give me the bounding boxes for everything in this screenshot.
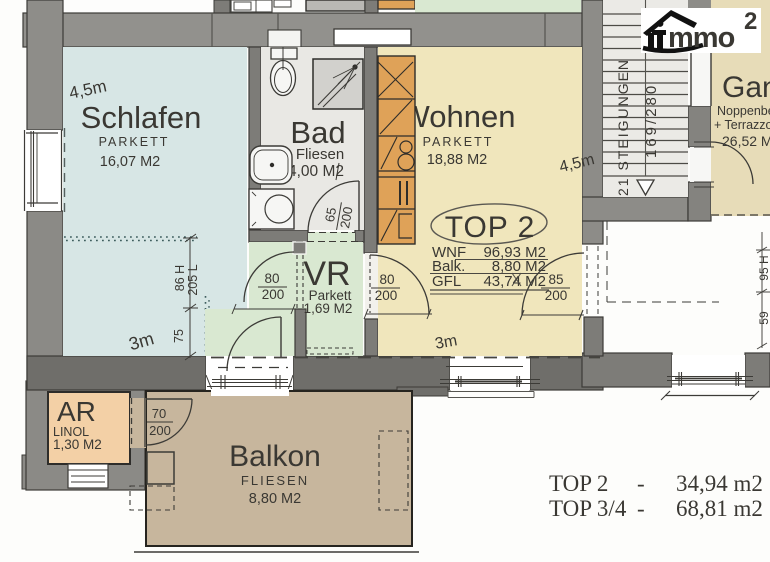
svg-text:1,69 M2: 1,69 M2 [304, 301, 353, 316]
svg-text:80: 80 [264, 271, 279, 286]
svg-text:TOP 2: TOP 2 [445, 211, 536, 244]
svg-text:59: 59 [757, 311, 770, 325]
svg-text:200: 200 [545, 288, 568, 303]
svg-text:200: 200 [262, 287, 285, 302]
svg-text:PARKETT: PARKETT [423, 135, 494, 149]
svg-text:16,07 M2: 16,07 M2 [100, 154, 160, 170]
svg-text:18,88 M2: 18,88 M2 [427, 152, 487, 168]
svg-text:Fliesen: Fliesen [296, 146, 344, 163]
svg-text:Wohnen: Wohnen [401, 99, 516, 134]
svg-text:TOP 2: TOP 2 [549, 471, 608, 496]
svg-text:34,94 m2: 34,94 m2 [676, 471, 763, 496]
svg-text:68,81 m2: 68,81 m2 [676, 496, 763, 521]
svg-text:FLIESEN: FLIESEN [241, 473, 309, 488]
svg-text:GFL: GFL [432, 273, 461, 290]
svg-text:85: 85 [548, 272, 563, 287]
svg-text:-: - [637, 471, 645, 496]
svg-text:Bad: Bad [290, 115, 345, 150]
svg-text:4,00 M2: 4,00 M2 [288, 163, 344, 180]
svg-text:75: 75 [172, 329, 186, 343]
svg-text:1,30 M2: 1,30 M2 [53, 437, 102, 452]
svg-text:mmo: mmo [668, 22, 735, 54]
svg-text:86 H: 86 H [173, 265, 187, 291]
svg-text:65: 65 [322, 206, 339, 223]
svg-text:95 H: 95 H [757, 255, 770, 280]
svg-text:+ Terrazzo: + Terrazzo [714, 118, 770, 132]
svg-text:169/280: 169/280 [643, 83, 660, 158]
svg-text:-: - [637, 496, 645, 521]
svg-text:AR: AR [57, 396, 96, 427]
svg-text:200: 200 [375, 288, 398, 303]
svg-text:8,80 M2: 8,80 M2 [249, 491, 301, 507]
svg-text:2: 2 [744, 8, 757, 35]
svg-text:80: 80 [379, 272, 394, 287]
svg-text:205 L: 205 L [186, 264, 200, 295]
svg-text:PARKETT: PARKETT [99, 135, 170, 149]
svg-text:Schlafen: Schlafen [81, 100, 202, 135]
svg-text:70: 70 [152, 406, 166, 421]
svg-text:Gang: Gang [722, 71, 770, 104]
svg-text:Noppenbe: Noppenbe [717, 104, 770, 118]
svg-text:Balkon: Balkon [229, 440, 321, 473]
svg-text:TOP 3/4: TOP 3/4 [549, 496, 627, 521]
svg-text:21 STEIGUNGEN: 21 STEIGUNGEN [615, 58, 631, 196]
svg-text:200: 200 [149, 423, 171, 438]
